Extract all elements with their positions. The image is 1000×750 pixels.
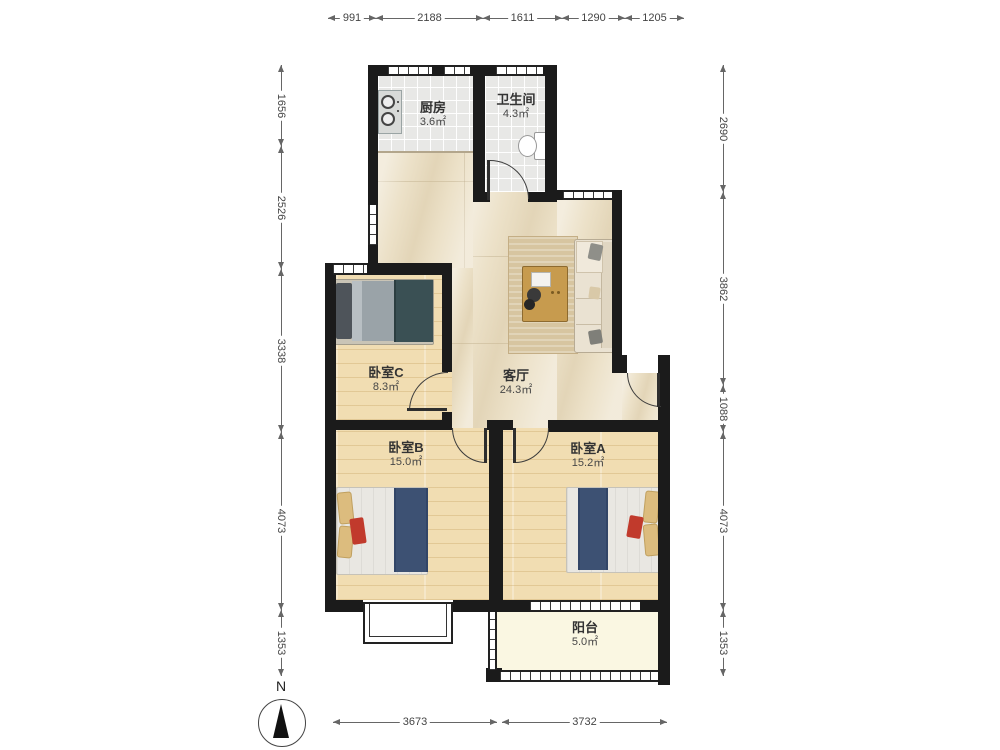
dimension-label: 991	[340, 12, 364, 24]
wall	[367, 263, 452, 275]
dim-right-5: 1353	[717, 610, 729, 676]
dimension-label: 3673	[400, 716, 430, 728]
door-leaf-bedroom-b	[484, 428, 487, 463]
door-leaf-entrance	[657, 373, 660, 407]
bed-b-runner	[394, 488, 428, 572]
sofa-pillow	[588, 329, 603, 345]
dim-left-5: 1353	[275, 610, 287, 676]
dimension-label: 1353	[275, 628, 287, 658]
room-name: 卧室C	[346, 365, 426, 380]
kitchen-threshold	[378, 151, 473, 153]
bed-c-blanket-fold	[352, 281, 362, 341]
wall	[432, 65, 444, 76]
room-label-bedroom-a: 卧室A 15.2㎡	[548, 441, 628, 470]
dim-top-2: 2188	[376, 12, 483, 24]
bay-window	[363, 604, 453, 644]
dimension-label: 1656	[275, 90, 287, 120]
dim-left-1: 1656	[275, 65, 287, 146]
room-name: 卧室B	[366, 440, 446, 455]
dim-right-1: 2690	[717, 65, 729, 192]
room-label-balcony: 阳台 5.0㎡	[545, 620, 625, 649]
wall	[368, 245, 378, 268]
dimension-label: 3862	[717, 273, 729, 303]
wall	[368, 65, 378, 205]
door-leaf-bedroom-c	[407, 408, 447, 411]
window-balcony-left	[488, 612, 497, 670]
table-tray	[531, 272, 551, 287]
toilet-bowl	[518, 135, 537, 157]
table-pot	[524, 299, 535, 310]
bay-window-inner	[369, 604, 447, 637]
table-dot	[551, 291, 554, 294]
wall	[442, 412, 452, 430]
room-name: 客厅	[476, 368, 556, 383]
compass-needle-icon	[273, 704, 289, 738]
wall	[325, 420, 452, 430]
room-area: 24.3㎡	[476, 383, 556, 397]
dim-left-4: 4073	[275, 432, 287, 610]
room-label-bathroom: 卫生间 4.3㎡	[476, 92, 556, 121]
floor-living-strip	[450, 268, 473, 430]
room-area: 15.0㎡	[366, 455, 446, 469]
door-leaf-bedroom-a	[513, 428, 516, 463]
window	[388, 65, 432, 76]
room-area: 5.0㎡	[545, 635, 625, 649]
dimension-label: 4073	[275, 506, 287, 536]
room-name: 卧室A	[548, 441, 628, 456]
floor-dining	[378, 153, 473, 268]
window	[496, 65, 543, 76]
dim-right-2: 3862	[717, 192, 729, 385]
dimension-label: 4073	[717, 506, 729, 536]
bed-c-duvet	[394, 280, 433, 342]
window	[444, 65, 470, 76]
sofa-seam	[576, 324, 601, 325]
dimension-label: 1353	[717, 628, 729, 658]
dim-bottom-2: 3732	[502, 716, 667, 728]
room-label-bedroom-c: 卧室C 8.3㎡	[346, 365, 426, 394]
wall	[442, 263, 452, 372]
wall	[612, 190, 622, 373]
window-balcony-door	[530, 600, 640, 612]
window	[333, 263, 367, 275]
dimension-label: 3338	[275, 335, 287, 365]
dim-top-5: 1205	[625, 12, 684, 24]
room-name: 阳台	[545, 620, 625, 635]
room-area: 8.3㎡	[346, 380, 426, 394]
compass-north-label: N	[270, 678, 292, 694]
wall	[489, 420, 503, 612]
room-area: 15.2㎡	[548, 456, 628, 470]
bed-c-pillow	[336, 283, 352, 339]
dimension-label: 1205	[639, 12, 669, 24]
dim-right-4: 4073	[717, 432, 729, 610]
dim-top-1: 991	[328, 12, 376, 24]
dimension-label: 2690	[717, 113, 729, 143]
wall	[473, 65, 485, 202]
dimension-label: 3732	[569, 716, 599, 728]
dimension-label: 1088	[717, 393, 729, 423]
dim-left-3: 3338	[275, 269, 287, 432]
dimension-label: 2526	[275, 192, 287, 222]
dim-left-2: 2526	[275, 146, 287, 269]
wall	[548, 420, 670, 432]
window	[563, 190, 612, 200]
room-label-bedroom-b: 卧室B 15.0㎡	[366, 440, 446, 469]
dim-right-3: 1088	[717, 385, 729, 432]
floorplan-canvas: 厨房 3.6㎡ 卫生间 4.3㎡ 卧室C 8.3㎡ 客厅 24.3㎡ 卧室B 1…	[0, 0, 1000, 750]
dim-top-3: 1611	[483, 12, 562, 24]
room-area: 4.3㎡	[476, 107, 556, 121]
window-balcony-bottom	[500, 670, 658, 682]
dim-bottom-1: 3673	[333, 716, 497, 728]
room-name: 卫生间	[476, 92, 556, 107]
dimension-label: 1290	[578, 12, 608, 24]
dimension-label: 2188	[414, 12, 444, 24]
dim-top-4: 1290	[562, 12, 625, 24]
wall	[325, 263, 336, 612]
room-area: 3.6㎡	[393, 115, 473, 129]
window	[368, 205, 378, 245]
room-label-living: 客厅 24.3㎡	[476, 368, 556, 397]
room-label-kitchen: 厨房 3.6㎡	[393, 100, 473, 129]
door-leaf-bathroom	[487, 160, 490, 200]
sofa-pillow	[588, 286, 601, 299]
wall	[545, 65, 557, 202]
bed-a-runner	[578, 488, 608, 570]
room-name: 厨房	[393, 100, 473, 115]
dimension-label: 1611	[508, 12, 538, 24]
table-dot	[557, 291, 560, 294]
